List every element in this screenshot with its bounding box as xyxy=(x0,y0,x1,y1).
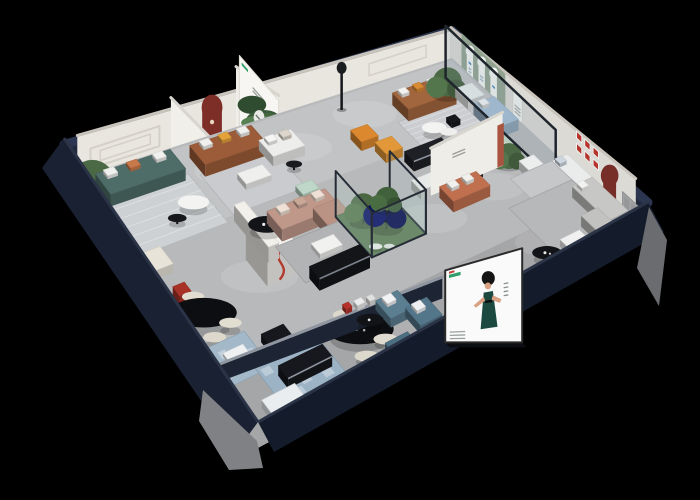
side-table-black-front xyxy=(357,314,384,332)
bar-stool-4 xyxy=(219,318,242,335)
side-table-black-teal xyxy=(168,214,187,228)
showroom-render xyxy=(0,0,700,500)
coffee-table-white-teal xyxy=(178,195,209,215)
scene-canvas xyxy=(0,0,700,500)
coral-wall-strip xyxy=(497,123,503,168)
